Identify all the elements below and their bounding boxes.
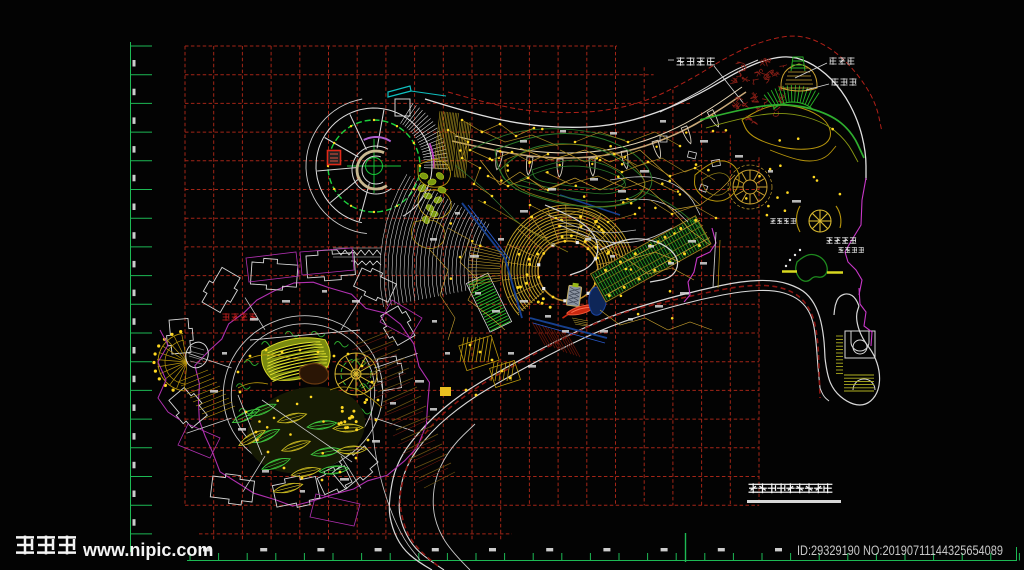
svg-text:ID:29329190 NO:201907111443256: ID:29329190 NO:20190711144325654089 (797, 543, 1003, 558)
svg-text:www.nipic.com: www.nipic.com (82, 540, 213, 560)
